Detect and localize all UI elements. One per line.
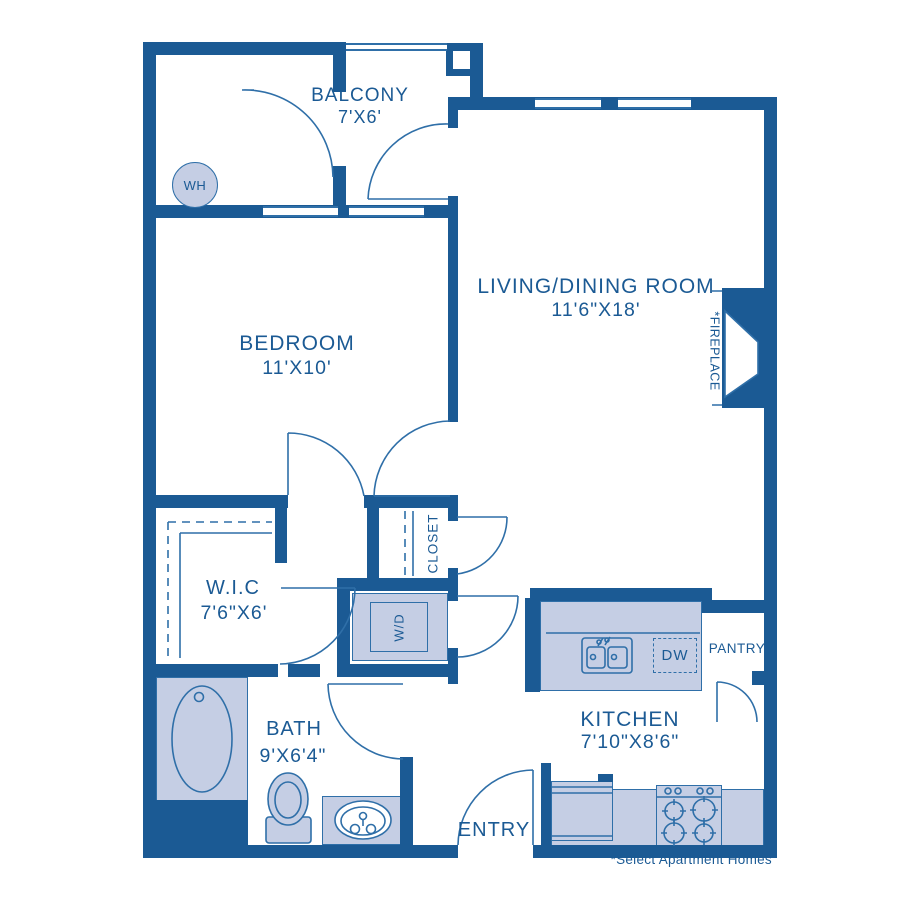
door-arc-bath	[328, 684, 403, 759]
door-arc-bedroom-entry	[374, 421, 450, 496]
living-room-label: LIVING/DINING ROOM	[477, 275, 714, 299]
stove-burner-ticks	[692, 821, 716, 845]
balcony-label: BALCONY	[311, 85, 409, 107]
wic-dims: 7'6"X6'	[201, 602, 268, 625]
linework-overlay	[0, 0, 900, 900]
washer-dryer-label: W/D	[375, 602, 423, 652]
stove-knob	[707, 788, 713, 794]
stove-burner	[693, 799, 715, 821]
bedroom-label: BEDROOM	[239, 332, 355, 356]
floor-plan: DW WH	[0, 0, 900, 900]
door-arc-wic	[280, 588, 355, 664]
stove-burner-ticks	[690, 796, 718, 824]
bedroom-dims: 11'X10'	[262, 357, 331, 380]
bathtub	[172, 686, 232, 792]
stove-burner-ticks	[661, 820, 687, 846]
living-room-dims: 11'6"X18'	[551, 299, 640, 322]
stove-knob	[665, 788, 671, 794]
bath-dims: 9'X6'4"	[260, 745, 327, 768]
stove-knob	[697, 788, 703, 794]
balcony-dims: 7'X6'	[338, 107, 382, 128]
stove-burner-ticks	[662, 799, 686, 823]
pantry-label: PANTRY	[709, 641, 766, 656]
bath-label: BATH	[266, 718, 322, 741]
door-arc-balcony	[368, 124, 448, 199]
refrigerator-lines	[551, 787, 613, 836]
bathtub-drain	[195, 693, 204, 702]
footnote: *Select Apartment Homes	[472, 852, 772, 867]
kitchen-label: KITCHEN	[580, 708, 679, 732]
door-arc-closet	[457, 517, 507, 574]
kitchen-dims: 7'10"X8'6"	[581, 731, 680, 754]
fireplace-label: *FIREPLACE	[667, 303, 763, 399]
wic-label: W.I.C	[206, 577, 260, 600]
door-arc-bedroom	[288, 433, 364, 496]
door-arc-pantry	[717, 682, 757, 722]
door-arc-hall	[457, 596, 518, 657]
stove-knob	[675, 788, 681, 794]
entry-label: ENTRY	[458, 819, 530, 842]
closet-label: CLOSET	[409, 496, 457, 590]
